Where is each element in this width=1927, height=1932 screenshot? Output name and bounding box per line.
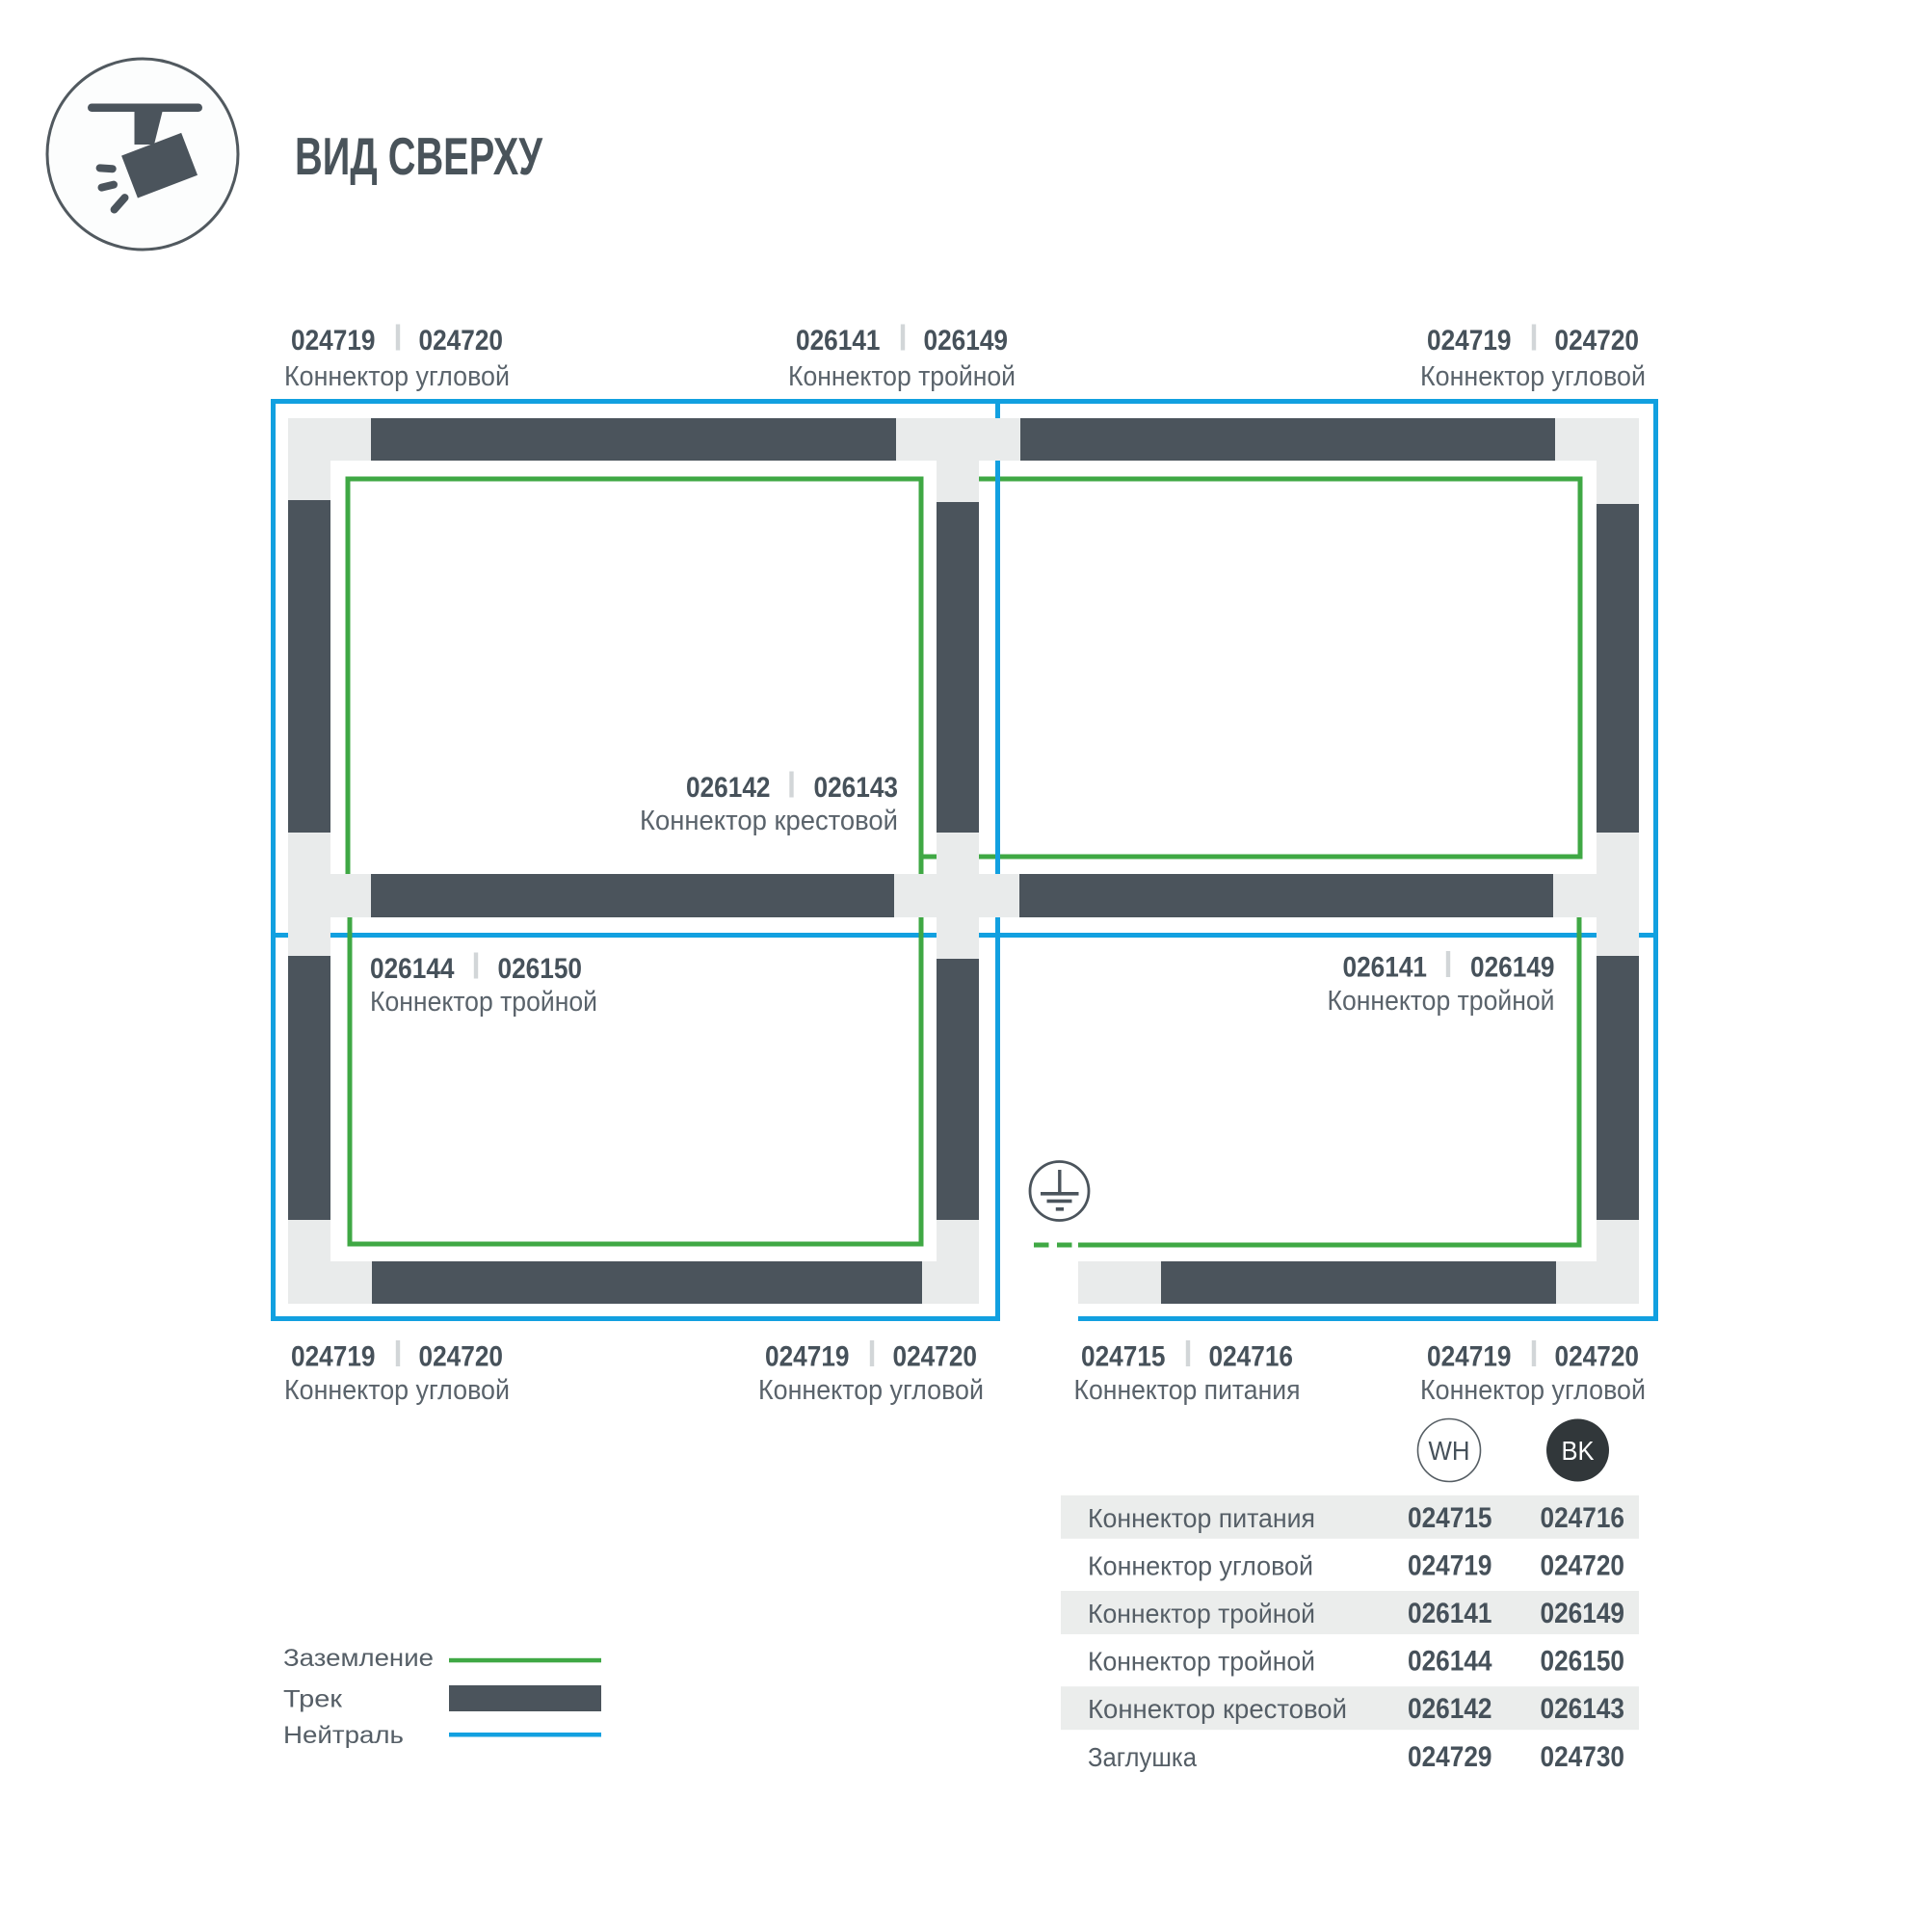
svg-text:024716: 024716 — [1541, 1502, 1625, 1534]
svg-text:024720: 024720 — [1541, 1549, 1625, 1581]
svg-text:024715: 024715 — [1081, 1341, 1166, 1373]
svg-text:026144: 026144 — [1408, 1646, 1492, 1678]
svg-text:024730: 024730 — [1541, 1741, 1625, 1773]
svg-text:026150: 026150 — [1541, 1646, 1625, 1678]
svg-text:Коннектор тройной: Коннектор тройной — [370, 987, 597, 1018]
svg-text:024719: 024719 — [291, 1341, 376, 1373]
svg-text:026141: 026141 — [1408, 1598, 1492, 1629]
svg-text:026149: 026149 — [1470, 952, 1555, 984]
svg-text:WH: WH — [1429, 1436, 1470, 1466]
svg-text:024716: 024716 — [1209, 1341, 1294, 1373]
svg-text:024719: 024719 — [1427, 1341, 1512, 1373]
svg-text:Коннектор крестовой: Коннектор крестовой — [640, 806, 898, 836]
svg-text:Коннектор угловой: Коннектор угловой — [1420, 1375, 1646, 1406]
svg-text:Заглушка: Заглушка — [1088, 1742, 1197, 1772]
svg-text:026143: 026143 — [1541, 1693, 1625, 1725]
svg-text:026142: 026142 — [1408, 1693, 1492, 1725]
svg-text:026142: 026142 — [686, 772, 771, 804]
svg-text:026150: 026150 — [498, 953, 583, 985]
svg-text:Заземление: Заземление — [283, 1645, 434, 1672]
svg-text:Коннектор тройной: Коннектор тройной — [1088, 1647, 1315, 1677]
svg-text:Коннектор крестовой: Коннектор крестовой — [1088, 1694, 1347, 1724]
svg-text:024720: 024720 — [1555, 1341, 1640, 1373]
svg-text:024720: 024720 — [893, 1341, 978, 1373]
svg-text:024719: 024719 — [765, 1341, 850, 1373]
svg-text:Коннектор угловой: Коннектор угловой — [1420, 361, 1646, 392]
svg-text:026141: 026141 — [1343, 952, 1428, 984]
svg-text:024729: 024729 — [1408, 1741, 1492, 1773]
svg-text:Коннектор питания: Коннектор питания — [1074, 1375, 1301, 1406]
svg-text:026149: 026149 — [1541, 1598, 1625, 1629]
svg-text:Коннектор угловой: Коннектор угловой — [284, 1375, 510, 1406]
svg-text:BK: BK — [1562, 1436, 1595, 1466]
svg-text:Нейтраль: Нейтраль — [283, 1722, 404, 1749]
svg-text:024719: 024719 — [291, 325, 376, 357]
svg-text:Коннектор тройной: Коннектор тройной — [788, 361, 1016, 392]
svg-text:Коннектор угловой: Коннектор угловой — [284, 361, 510, 392]
svg-text:024715: 024715 — [1408, 1502, 1492, 1534]
svg-text:024720: 024720 — [419, 325, 504, 357]
svg-text:026141: 026141 — [796, 325, 881, 357]
svg-text:026149: 026149 — [924, 325, 1009, 357]
svg-text:024719: 024719 — [1427, 325, 1512, 357]
svg-text:Коннектор тройной: Коннектор тройной — [1088, 1599, 1315, 1628]
svg-text:ВИД СВЕРХУ: ВИД СВЕРХУ — [295, 126, 543, 186]
svg-text:Коннектор угловой: Коннектор угловой — [1088, 1550, 1313, 1580]
svg-text:024720: 024720 — [419, 1341, 504, 1373]
svg-text:024720: 024720 — [1555, 325, 1640, 357]
svg-text:Трек: Трек — [283, 1686, 343, 1713]
svg-text:Коннектор тройной: Коннектор тройной — [1328, 986, 1555, 1017]
svg-text:026144: 026144 — [370, 953, 455, 985]
svg-text:Коннектор угловой: Коннектор угловой — [758, 1375, 984, 1406]
svg-text:Коннектор питания: Коннектор питания — [1088, 1503, 1315, 1533]
svg-text:024719: 024719 — [1408, 1549, 1492, 1581]
svg-text:026143: 026143 — [814, 772, 899, 804]
